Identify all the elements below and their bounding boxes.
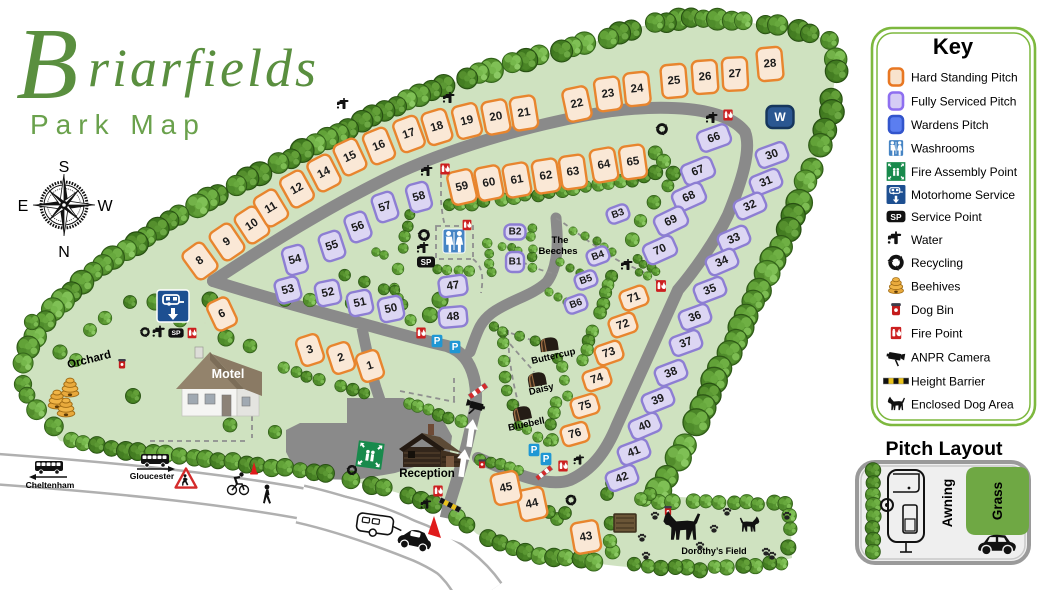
svg-text:W: W xyxy=(774,110,786,124)
svg-text:Park Map: Park Map xyxy=(30,109,206,140)
svg-text:26: 26 xyxy=(698,71,712,84)
svg-text:riarfields: riarfields xyxy=(88,38,319,98)
svg-text:Dog Bin: Dog Bin xyxy=(911,303,954,317)
svg-text:Motorhome Service: Motorhome Service xyxy=(911,188,1015,202)
svg-text:Pitch Layout: Pitch Layout xyxy=(885,438,1003,460)
svg-text:N: N xyxy=(58,244,70,261)
svg-text:Cheltenham: Cheltenham xyxy=(26,480,75,490)
svg-text:Fire Assembly Point: Fire Assembly Point xyxy=(911,165,1018,179)
svg-text:20: 20 xyxy=(489,110,504,124)
svg-text:65: 65 xyxy=(626,155,641,169)
svg-text:P: P xyxy=(531,445,538,456)
svg-text:25: 25 xyxy=(667,74,681,87)
svg-text:The: The xyxy=(552,235,569,246)
svg-text:Beehives: Beehives xyxy=(911,280,960,294)
svg-text:23: 23 xyxy=(601,87,615,101)
svg-text:Height Barrier: Height Barrier xyxy=(911,375,985,389)
svg-text:SP: SP xyxy=(171,330,181,337)
svg-text:Beeches: Beeches xyxy=(538,246,577,257)
svg-text:28: 28 xyxy=(763,57,777,70)
svg-text:27: 27 xyxy=(728,68,741,81)
svg-text:Enclosed Dog Area: Enclosed Dog Area xyxy=(911,398,1014,412)
svg-text:47: 47 xyxy=(446,279,460,293)
svg-text:W: W xyxy=(97,198,113,215)
svg-text:24: 24 xyxy=(630,82,645,95)
svg-text:Fully Serviced Pitch: Fully Serviced Pitch xyxy=(911,95,1016,109)
svg-text:Dorothy’s Field: Dorothy’s Field xyxy=(681,546,746,556)
svg-text:B1: B1 xyxy=(509,257,522,268)
svg-text:Awning: Awning xyxy=(940,479,955,528)
svg-text:B2: B2 xyxy=(509,227,522,238)
svg-text:Motel: Motel xyxy=(212,367,245,381)
svg-text:E: E xyxy=(18,198,29,215)
svg-text:21: 21 xyxy=(517,106,532,120)
svg-text:62: 62 xyxy=(539,169,554,183)
svg-text:P: P xyxy=(452,342,459,353)
svg-text:48: 48 xyxy=(446,310,460,323)
svg-text:ANPR Camera: ANPR Camera xyxy=(911,351,991,365)
svg-text:Reception: Reception xyxy=(399,468,455,480)
svg-text:Gloucester: Gloucester xyxy=(130,471,175,481)
svg-text:Washrooms: Washrooms xyxy=(911,142,975,156)
svg-text:P: P xyxy=(543,454,550,465)
svg-text:SP: SP xyxy=(421,258,432,267)
svg-text:S: S xyxy=(59,159,70,176)
svg-text:Fire Point: Fire Point xyxy=(911,327,963,341)
svg-text:Service Point: Service Point xyxy=(911,210,982,224)
svg-text:63: 63 xyxy=(566,165,580,179)
svg-text:Hard Standing Pitch: Hard Standing Pitch xyxy=(911,71,1018,85)
svg-text:Recycling: Recycling xyxy=(911,256,963,270)
svg-text:SP: SP xyxy=(890,212,902,222)
svg-text:B: B xyxy=(16,8,78,121)
svg-text:60: 60 xyxy=(482,176,497,190)
svg-text:Water: Water xyxy=(911,233,943,247)
svg-text:Wardens Pitch: Wardens Pitch xyxy=(911,118,989,132)
svg-text:Grass: Grass xyxy=(990,482,1005,520)
svg-text:43: 43 xyxy=(579,530,594,544)
svg-text:Key: Key xyxy=(933,34,974,59)
svg-text:P: P xyxy=(434,336,441,347)
